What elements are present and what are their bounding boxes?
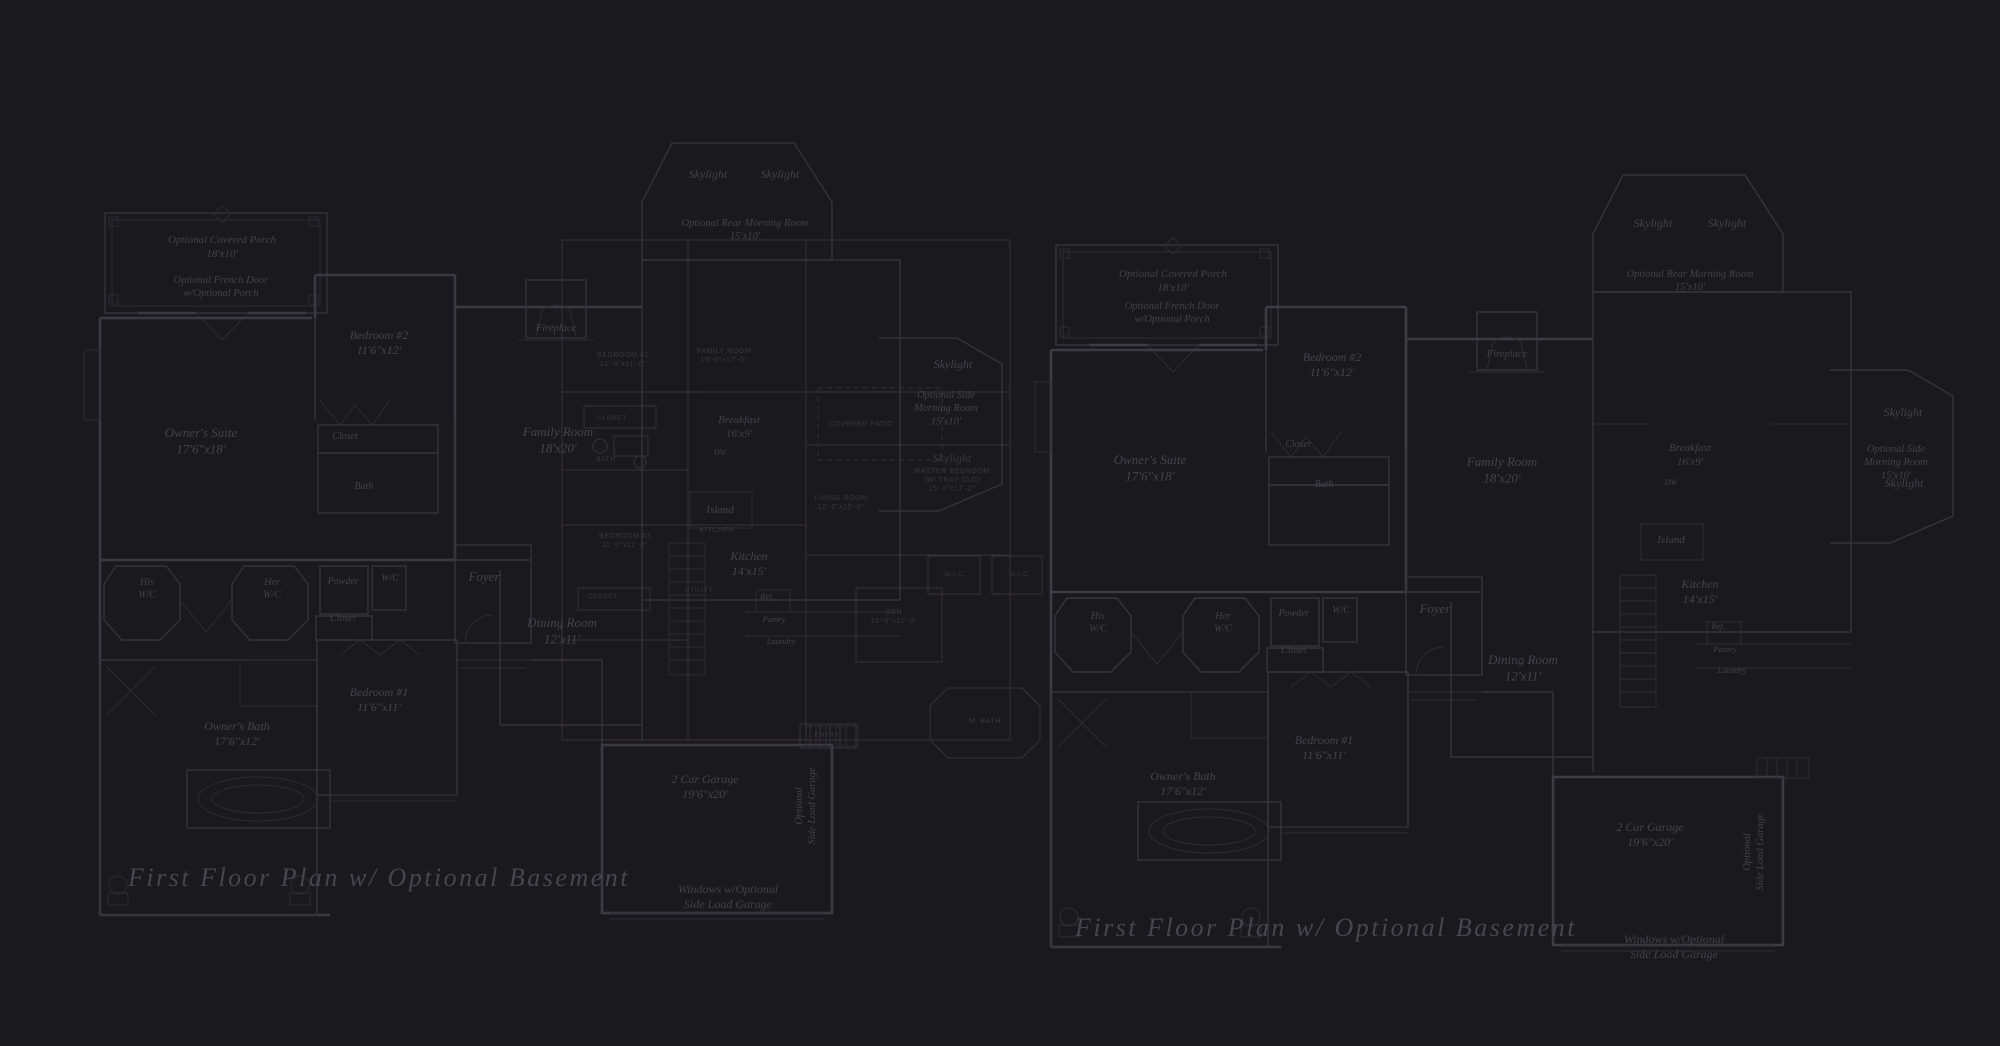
small-wic-left-label: W.I.C. <box>944 571 965 578</box>
small-closet-upper-label: CLOSET <box>597 415 627 422</box>
bedroom1-label: Bedroom #111'6"x11' <box>350 685 409 714</box>
dining-room-label: Dining Room12'x11' <box>526 615 597 646</box>
owners-bath-label: Owner's Bath17'6"x12' <box>204 719 270 748</box>
his-wc-label: HisW/C <box>1089 611 1107 635</box>
garage-label: 2 Car Garage19'6"x20' <box>1616 820 1684 849</box>
closet-label-hall: Closet <box>330 613 356 624</box>
side-morning-room-label: Optional SideMorning Room15'x10' <box>913 390 978 427</box>
skylight-rear-left-label: Skylight <box>1634 216 1673 230</box>
breakfast-label: Breakfast16'x9' <box>718 414 761 440</box>
small-den-label: DEN10'-0"x11'-0" <box>871 609 917 625</box>
island-label: Island <box>1656 534 1685 546</box>
skylight-rear-right-label: Skylight <box>1708 216 1747 230</box>
small-master-bath-label: M. BATH <box>969 718 1001 725</box>
island-label: Island <box>705 504 734 516</box>
dw-label: DW <box>1664 478 1679 487</box>
owners-suite-label: Owner's Suite17'6"x18' <box>1114 452 1187 483</box>
skylight-rear-right-label: Skylight <box>761 167 800 181</box>
small-covered-patio-label: COVERED PATIO <box>829 421 893 428</box>
skylight-side-bottom-label: Skylight <box>933 451 972 465</box>
closet-label-bedroom2: Closet <box>332 431 358 442</box>
pantry-label: Pantry <box>761 614 785 624</box>
dining-room-label: Dining Room12'x11' <box>1487 652 1558 683</box>
dw-label: DW <box>713 448 728 457</box>
small-bedroom3-label: BEDROOM #311'-0"x11'-0" <box>599 533 651 549</box>
foyer-label: Foyer <box>467 569 500 584</box>
covered-porch-label: Optional Covered Porch18'x10' <box>168 234 276 260</box>
left-first-floor-plan-labels: Optional Covered Porch18'x10'Optional Fr… <box>127 167 978 911</box>
small-wic-right-label: W.I.C. <box>1009 571 1030 578</box>
windows-optional-label: Windows w/OptionalSide Load Garage <box>1624 932 1725 961</box>
small-living-room-label: LIVING ROOM12'-0"x15'-0" <box>814 495 867 511</box>
skylight-side-bottom-label: Skylight <box>1885 476 1924 490</box>
wc-label: W/C <box>1332 605 1350 616</box>
small-closet-lower-label: CLOSET <box>588 593 618 600</box>
bath-label: Bath <box>355 481 374 492</box>
rear-morning-room-label: Optional Rear Morning Room15'x10' <box>1627 269 1754 293</box>
small-entry-label: ENTRY <box>815 732 840 739</box>
plan-caption: First Floor Plan w/ Optional Basement <box>1074 913 1577 942</box>
garage-label: 2 Car Garage19'6"x20' <box>671 772 739 801</box>
skylight-rear-left-label: Skylight <box>689 167 728 181</box>
family-room-label: Family Room18'x20' <box>522 424 593 455</box>
pantry-label: Pantry <box>1712 644 1736 654</box>
small-utility-label: UTILITY <box>685 587 713 594</box>
bath-label: Bath <box>1315 479 1334 490</box>
her-wc-label: HerW/C <box>263 577 281 601</box>
ref-label: Ref. <box>759 591 773 601</box>
fireplace-label: Fireplace <box>1486 349 1528 360</box>
french-door-label: Optional French Doorw/Optional Porch <box>174 275 270 299</box>
family-room-label: Family Room18'x20' <box>1466 454 1537 485</box>
side-load-garage-label: OptionalSide Load Garage <box>1742 813 1766 890</box>
breakfast-label: Breakfast16'x9' <box>1669 442 1712 468</box>
french-door-label: Optional French Doorw/Optional Porch <box>1125 301 1221 325</box>
rear-morning-room-label: Optional Rear Morning Room15'x10' <box>682 218 809 242</box>
her-wc-label: HerW/C <box>1214 611 1232 635</box>
right-first-floor-plan-labels: Optional Covered Porch18'x10'Optional Fr… <box>1074 216 1928 961</box>
small-bath-label: BATH <box>596 456 615 463</box>
side-load-garage-label: OptionalSide Load Garage <box>794 767 818 844</box>
skylight-side-top-label: Skylight <box>934 357 973 371</box>
kitchen-label: Kitchen14'x15' <box>729 549 767 578</box>
bedroom1-label: Bedroom #111'6"x11' <box>1295 733 1354 762</box>
small-family-room-label: FAMILY ROOM15'-0"x17'-0" <box>697 348 752 364</box>
blueprint-canvas: Optional Covered Porch18'x10'Optional Fr… <box>0 0 2000 1046</box>
small-bedroom2-label: BEDROOM #212'-0"x11'-0" <box>597 352 649 368</box>
foyer-label: Foyer <box>1418 601 1451 616</box>
covered-porch-label: Optional Covered Porch18'x10' <box>1119 268 1227 294</box>
powder-label: Powder <box>1277 608 1309 619</box>
laundry-label: Laundry <box>1717 665 1747 675</box>
laundry-label: Laundry <box>766 636 796 646</box>
bedroom2-label: Bedroom #211'6"x12' <box>350 328 409 357</box>
owners-bath-label: Owner's Bath17'6"x12' <box>1150 769 1216 798</box>
owners-suite-label: Owner's Suite17'6"x18' <box>165 425 238 456</box>
plan-caption: First Floor Plan w/ Optional Basement <box>127 863 630 892</box>
his-wc-label: HisW/C <box>138 577 156 601</box>
bedroom2-label: Bedroom #211'6"x12' <box>1303 350 1362 379</box>
small-plan-linework <box>562 240 1042 758</box>
kitchen-label: Kitchen14'x15' <box>1680 577 1718 606</box>
closet-label-hall: Closet <box>1281 645 1307 656</box>
powder-label: Powder <box>326 576 358 587</box>
closet-label-bedroom2: Closet <box>1285 439 1311 450</box>
skylight-side-top-label: Skylight <box>1884 405 1923 419</box>
ref-label: Ref. <box>1710 621 1724 631</box>
small-kitchen-label: KITCHEN <box>700 527 735 534</box>
small-master-bedroom-label: MASTER BEDROOM(W/ TRAY CLG)15'-0"x17'-2" <box>914 468 990 493</box>
windows-optional-label: Windows w/OptionalSide Load Garage <box>678 882 779 911</box>
wc-label: W/C <box>381 573 399 584</box>
fireplace-label: Fireplace <box>535 323 577 334</box>
